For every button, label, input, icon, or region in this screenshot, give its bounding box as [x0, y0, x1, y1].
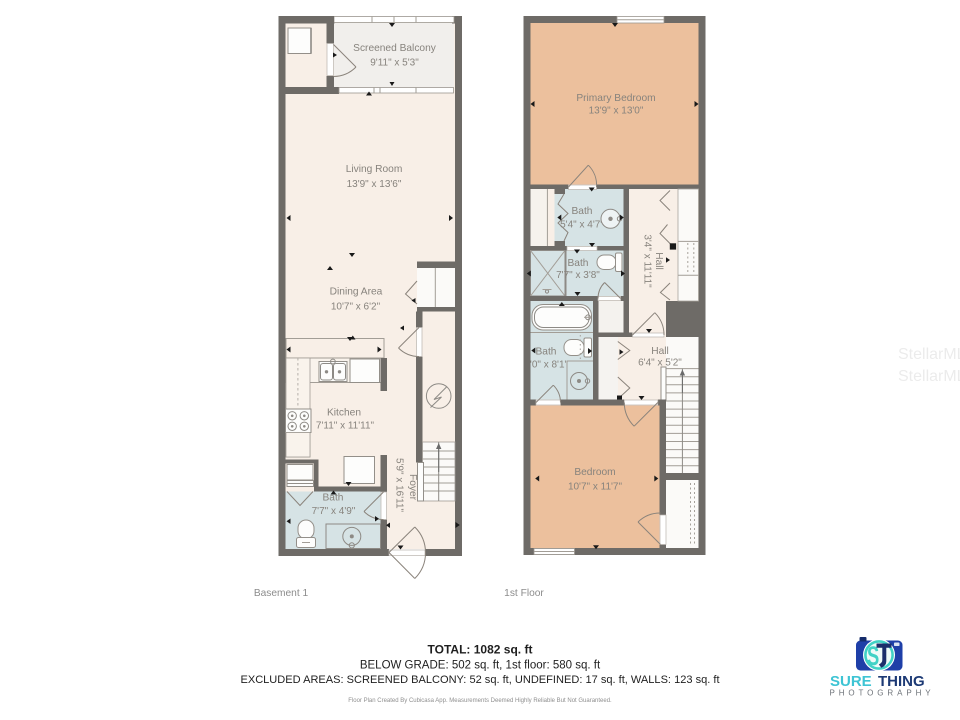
- svg-text:7'11" x 11'11": 7'11" x 11'11": [316, 421, 375, 432]
- svg-text:10'7" x 11'7": 10'7" x 11'7": [568, 482, 623, 493]
- svg-text:6'4" x 5'2": 6'4" x 5'2": [638, 358, 682, 369]
- svg-text:TOTAL: 1082 sq. ft: TOTAL: 1082 sq. ft: [428, 643, 533, 657]
- svg-text:5'9" x 16'11": 5'9" x 16'11": [394, 458, 405, 513]
- svg-text:Hall: Hall: [651, 346, 669, 357]
- svg-text:BELOW GRADE: 502 sq. ft, 1st f: BELOW GRADE: 502 sq. ft, 1st floor: 580 …: [360, 660, 601, 672]
- svg-text:Hall: Hall: [653, 252, 664, 270]
- svg-text:Floor Plan Created By Cubicasa: Floor Plan Created By Cubicasa App. Meas…: [348, 698, 612, 704]
- svg-text:Screened Balcony: Screened Balcony: [353, 43, 437, 54]
- svg-text:Living Room: Living Room: [346, 164, 403, 175]
- svg-text:EXCLUDED AREAS: SCREENED BALCO: EXCLUDED AREAS: SCREENED BALCONY: 52 sq.…: [240, 674, 719, 686]
- svg-text:PHOTOGRAPHY: PHOTOGRAPHY: [830, 689, 935, 698]
- svg-text:3'4" x 11'11": 3'4" x 11'11": [641, 234, 652, 288]
- svg-text:10'7" x 6'2": 10'7" x 6'2": [331, 302, 381, 313]
- svg-text:13'9" x 13'0": 13'9" x 13'0": [589, 106, 644, 117]
- svg-text:1st Floor: 1st Floor: [504, 588, 544, 599]
- svg-text:Dining Area: Dining Area: [330, 287, 383, 298]
- svg-text:7'7" x 4'9": 7'7" x 4'9": [312, 506, 356, 517]
- svg-text:Basement 1: Basement 1: [254, 588, 309, 599]
- svg-text:13'9" x 13'6": 13'9" x 13'6": [347, 179, 402, 190]
- svg-text:Bath: Bath: [568, 258, 589, 269]
- svg-text:Foyer: Foyer: [407, 474, 418, 501]
- svg-text:StellarMLS: StellarMLS: [898, 368, 960, 385]
- svg-text:'0" x 8'1": '0" x 8'1": [530, 360, 569, 371]
- svg-text:THING: THING: [878, 673, 925, 690]
- svg-text:Bath: Bath: [572, 206, 593, 217]
- svg-text:Kitchen: Kitchen: [327, 408, 361, 419]
- svg-text:7'7" x 3'8": 7'7" x 3'8": [556, 270, 600, 281]
- svg-text:StellarMLS: StellarMLS: [898, 346, 960, 363]
- svg-text:Bath: Bath: [536, 347, 557, 358]
- svg-text:9'11" x 5'3": 9'11" x 5'3": [370, 58, 419, 69]
- svg-text:5'4" x 4'7": 5'4" x 4'7": [560, 220, 604, 231]
- svg-text:SURE: SURE: [830, 673, 872, 690]
- svg-text:Primary Bedroom: Primary Bedroom: [576, 93, 655, 104]
- svg-text:Bedroom: Bedroom: [574, 467, 615, 478]
